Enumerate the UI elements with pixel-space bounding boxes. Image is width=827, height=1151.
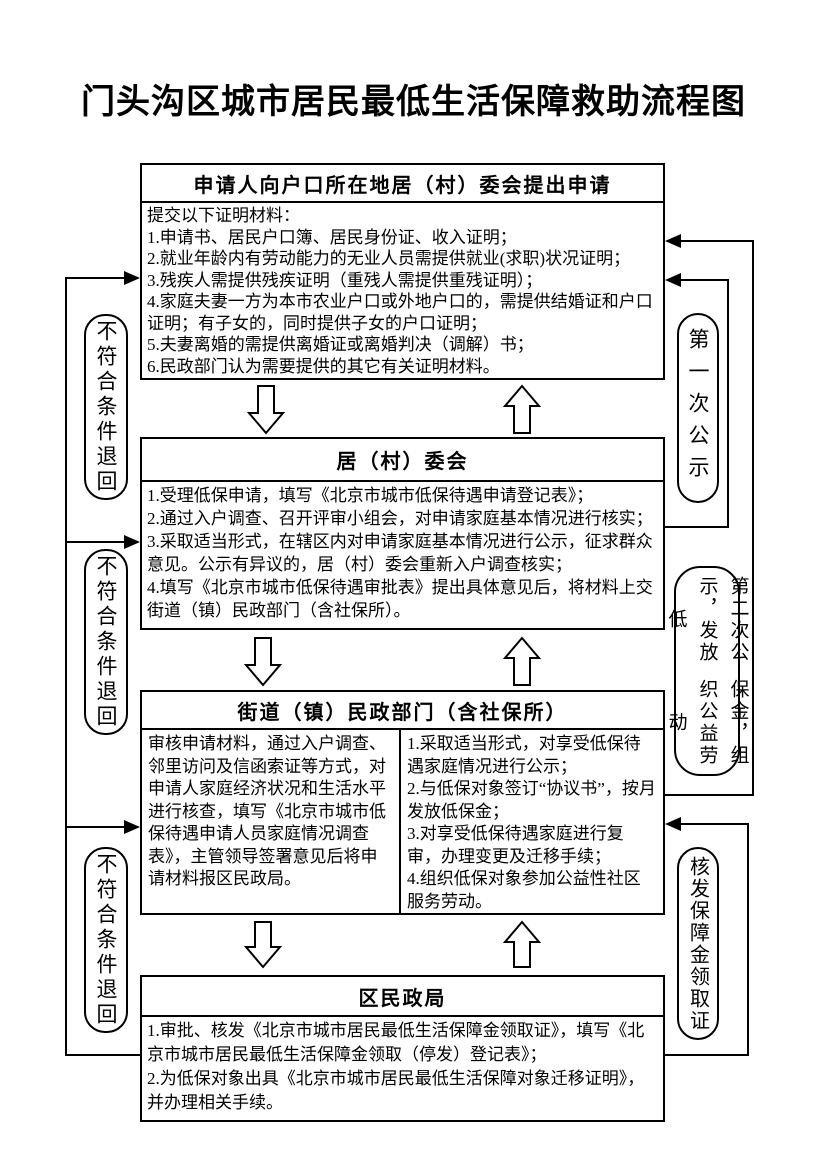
box-district-civil-affairs: 区民政局 1.审批、核发《北京市城市居民最低生活保障金领取证》，填写《北京市城市… [140,975,665,1122]
box-application-body: 提交以下证明材料： 1.申请书、居民户口簿、居民身份证、收入证明； 2.就业年龄… [142,203,663,379]
text-line: 1.受理低保申请，填写《北京市城市低保待遇申请登记表》； [147,484,658,507]
text-line: 2.为低保对象出具《北京市城市居民最低生活保障对象迁移证明》，并办理相关手续。 [147,1067,658,1115]
down-flow-arrow-3 [246,922,280,967]
box-street-civil-affairs: 街道（镇）民政部门（含社保所） 审核申请材料，通过入户调查、邻里访问及信函索证等… [140,690,665,915]
text-line: 1.采取适当形式，对享受低保待遇家庭情况进行公示； [407,733,657,778]
return-label-2: 不符合条件退回 [84,549,128,735]
up-flow-arrow-3 [505,922,539,967]
text-line: 1.审批、核发《北京市城市居民最低生活保障金领取证》，填写《北京市城市居民最低生… [147,1019,658,1067]
text-line: 6.民政部门认为需要提供的其它有关证明材料。 [147,356,658,378]
text-line: 4.填写《北京市城市低保待遇审批表》提出具体意见后，将材料上交街道（镇）民政部门… [147,576,658,622]
flowchart-page: 门头沟区城市居民最低生活保障救助流程图 申请人向户口所在地居（村）委会提出申请 … [0,0,827,1151]
certificate-issue-label: 核发保障金领取证 [677,847,719,1040]
box-district-civil-affairs-body: 1.审批、核发《北京市城市居民最低生活保障金领取证》，填写《北京市城市居民最低生… [142,1017,663,1117]
return-arrowhead-to-committee [124,535,140,549]
page-title: 门头沟区城市居民最低生活保障救助流程图 [0,74,827,123]
text-line: 2.通过入户调查、召开评审小组会，对申请家庭基本情况进行核实； [147,507,658,530]
return-label-3: 不符合条件退回 [84,847,128,1033]
text-line: 审核申请材料，通过入户调查、邻里访问及信函索证等方式，对申请人家庭经济状况和生活… [148,733,393,891]
box-application-header: 申请人向户口所在地居（村）委会提出申请 [142,165,663,203]
first-announcement-label: 第一次公示 [677,313,719,503]
box-application: 申请人向户口所在地居（村）委会提出申请 提交以下证明材料： 1.申请书、居民户口… [140,163,665,380]
box-village-committee: 居（村）委会 1.受理低保申请，填写《北京市城市低保待遇申请登记表》； 2.通过… [140,437,665,630]
box-street-civil-affairs-header: 街道（镇）民政部门（含社保所） [142,692,663,730]
box-street-civil-affairs-body: 审核申请材料，通过入户调查、邻里访问及信函索证等方式，对申请人家庭经济状况和生活… [142,730,663,913]
second-announcement-arrowhead [665,234,681,248]
text-line: 3.残疾人需提供残疾证明（重残人需提供重残证明）； [147,270,658,292]
up-flow-arrow-1 [505,386,539,433]
return-arrowhead-to-street [124,820,140,834]
box-village-committee-header: 居（村）委会 [142,439,663,482]
text-line: 2.就业年龄内有劳动能力的无业人员需提供就业(求职)状况证明； [147,248,658,270]
text-line: 5.夫妻离婚的需提供离婚证或离婚判决（调解）书； [147,334,658,356]
second-announcement-label: 第二次公示，发放低 保金，组织公益劳动 [674,566,740,776]
second-announcement-column-1: 第二次公示，发放低 [661,568,754,671]
text-line: 3.采取适当形式，在辖区内对申请家庭基本情况进行公示，征求群众意见。公示有异议的… [147,530,658,576]
up-flow-arrow-2 [505,638,539,685]
certificate-issue-arrowhead [665,817,681,831]
down-flow-arrow-2 [246,638,280,685]
text-line: 2.与低保对象签订“协议书”，按月发放低保金； [407,778,657,823]
street-right-column: 1.采取适当形式，对享受低保待遇家庭情况进行公示； 2.与低保对象签订“协议书”… [401,730,663,913]
text-line: 4.家庭夫妻一方为本市农业户口或外地户口的，需提供结婚证和户口证明；有子女的，同… [147,291,658,334]
down-flow-arrow-1 [249,386,283,433]
return-label-1: 不符合条件退回 [84,314,128,500]
second-announcement-column-2: 保金，组织公益劳动 [661,671,754,774]
box-district-civil-affairs-header: 区民政局 [142,977,663,1017]
text-line: 3.对享受低保待遇家庭进行复审，办理变更及迁移手续； [407,823,657,868]
text-line: 1.申请书、居民户口簿、居民身份证、收入证明； [147,227,658,249]
text-line: 提交以下证明材料： [147,205,658,227]
box-village-committee-body: 1.受理低保申请，填写《北京市城市低保待遇申请登记表》； 2.通过入户调查、召开… [142,482,663,624]
return-arrowhead-to-application [124,271,140,285]
text-line: 4.组织低保对象参加公益性社区服务劳动。 [407,868,657,913]
street-left-column: 审核申请材料，通过入户调查、邻里访问及信函索证等方式，对申请人家庭经济状况和生活… [142,730,401,913]
first-announcement-arrowhead [665,273,681,287]
